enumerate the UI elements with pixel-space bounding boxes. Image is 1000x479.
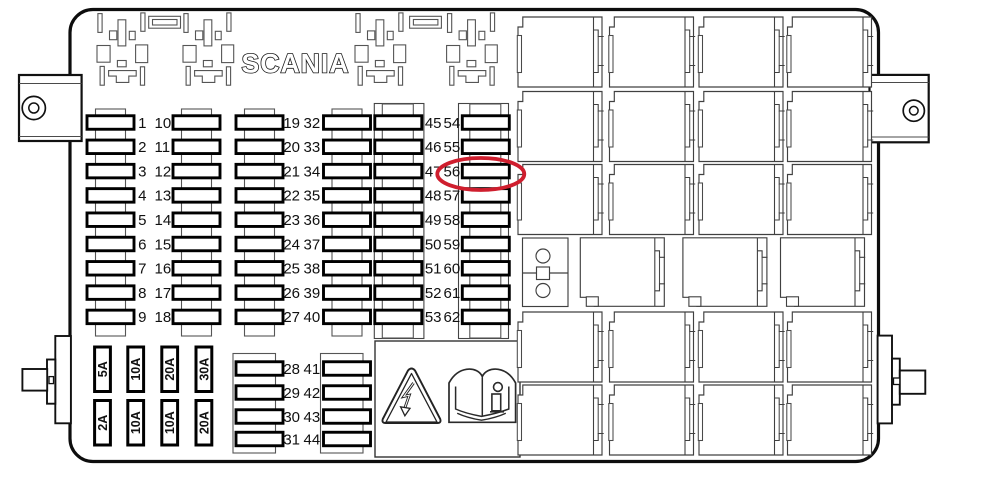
svg-text:8: 8 [138, 285, 146, 302]
svg-text:41: 41 [304, 361, 321, 378]
svg-text:44: 44 [304, 431, 321, 448]
svg-text:12: 12 [155, 163, 172, 180]
svg-text:3: 3 [138, 163, 146, 180]
svg-text:20A: 20A [197, 411, 211, 434]
svg-text:51: 51 [425, 261, 442, 278]
svg-text:10A: 10A [163, 411, 177, 434]
svg-text:15: 15 [155, 236, 172, 253]
svg-text:17: 17 [155, 285, 172, 302]
svg-text:48: 48 [425, 188, 442, 205]
svg-text:52: 52 [425, 285, 442, 302]
svg-text:10: 10 [155, 115, 172, 132]
svg-text:30: 30 [283, 409, 300, 426]
svg-text:10A: 10A [129, 358, 143, 381]
svg-text:6: 6 [138, 236, 146, 253]
svg-text:59: 59 [444, 236, 461, 253]
svg-text:2A: 2A [96, 415, 110, 431]
svg-text:50: 50 [425, 236, 442, 253]
svg-text:62: 62 [444, 309, 461, 326]
svg-text:1: 1 [138, 115, 146, 132]
svg-text:42: 42 [304, 385, 321, 402]
svg-text:57: 57 [444, 188, 461, 205]
svg-text:34: 34 [304, 163, 321, 180]
svg-text:33: 33 [304, 139, 321, 156]
svg-text:60: 60 [444, 261, 461, 278]
svg-text:SCANIA: SCANIA [242, 49, 350, 79]
svg-text:53: 53 [425, 309, 442, 326]
svg-text:4: 4 [138, 188, 146, 205]
svg-text:7: 7 [138, 261, 146, 278]
svg-text:35: 35 [304, 188, 321, 205]
svg-text:31: 31 [283, 431, 300, 448]
svg-text:21: 21 [283, 163, 300, 180]
svg-text:43: 43 [304, 409, 321, 426]
svg-text:61: 61 [444, 285, 461, 302]
svg-text:25: 25 [283, 261, 300, 278]
svg-text:9: 9 [138, 309, 146, 326]
svg-text:45: 45 [425, 115, 442, 132]
svg-text:54: 54 [444, 115, 461, 132]
svg-text:40: 40 [304, 309, 321, 326]
svg-text:38: 38 [304, 261, 321, 278]
svg-text:27: 27 [283, 309, 300, 326]
svg-text:32: 32 [304, 115, 321, 132]
svg-text:37: 37 [304, 236, 321, 253]
svg-text:46: 46 [425, 139, 442, 156]
svg-text:5A: 5A [96, 361, 110, 377]
svg-text:5: 5 [138, 212, 146, 229]
svg-text:30A: 30A [197, 358, 211, 381]
svg-text:55: 55 [444, 139, 461, 156]
svg-text:20A: 20A [163, 358, 177, 381]
svg-text:19: 19 [283, 115, 300, 132]
svg-text:14: 14 [155, 212, 172, 229]
svg-text:2: 2 [138, 139, 146, 156]
svg-text:20: 20 [283, 139, 300, 156]
svg-text:36: 36 [304, 212, 321, 229]
svg-text:39: 39 [304, 285, 321, 302]
svg-text:58: 58 [444, 212, 461, 229]
svg-text:16: 16 [155, 261, 172, 278]
svg-text:24: 24 [283, 236, 300, 253]
svg-text:49: 49 [425, 212, 442, 229]
svg-text:28: 28 [283, 361, 300, 378]
svg-text:11: 11 [155, 139, 171, 156]
svg-text:18: 18 [155, 309, 172, 326]
svg-text:13: 13 [155, 188, 172, 205]
svg-text:10A: 10A [129, 411, 143, 434]
svg-text:29: 29 [283, 385, 300, 402]
svg-text:26: 26 [283, 285, 300, 302]
svg-text:22: 22 [283, 188, 300, 205]
svg-text:23: 23 [283, 212, 300, 229]
